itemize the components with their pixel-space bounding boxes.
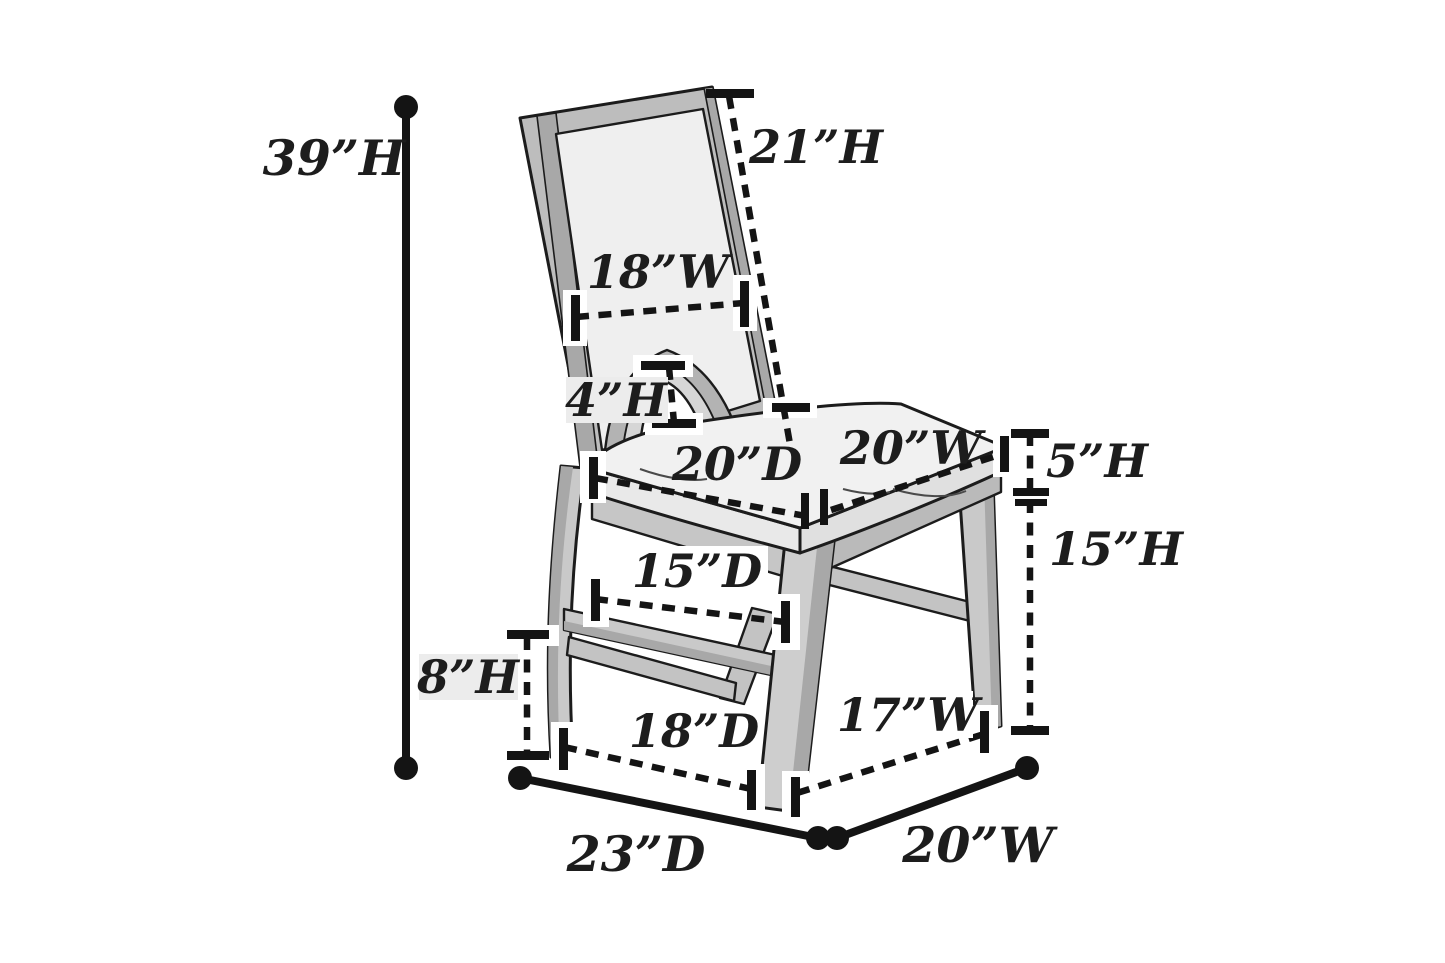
chair-dimension-diagram: 39”H 21”H 18”W 4”H 20”D 20”W 5”H 15”H 15… bbox=[0, 0, 1445, 963]
stretcher-height-label: 8”H bbox=[416, 650, 520, 704]
base-depth-label: 18”D bbox=[629, 704, 759, 758]
overall-height-label: 39”H bbox=[263, 129, 407, 187]
base-width-label: 17”W bbox=[837, 688, 983, 742]
overall-width-label: 20”W bbox=[901, 816, 1058, 874]
chair-dimension-diagram-page: 39”H 21”H 18”W 4”H 20”D 20”W 5”H 15”H 15… bbox=[0, 0, 1445, 963]
seat-height-label: 15”H bbox=[1049, 522, 1184, 576]
seat-width-label: 20”W bbox=[839, 421, 986, 475]
cushion-height-label: 5”H bbox=[1046, 434, 1149, 488]
back-cutout-height-label: 4”H bbox=[565, 373, 668, 427]
back-width-label: 18”W bbox=[587, 245, 733, 299]
stretcher-depth-label: 15”D bbox=[632, 544, 762, 598]
back-height-label: 21”H bbox=[748, 120, 884, 174]
overall-depth-label: 23”D bbox=[566, 825, 706, 883]
base-width-line bbox=[797, 734, 984, 793]
seat-depth-label: 20”D bbox=[671, 437, 802, 491]
